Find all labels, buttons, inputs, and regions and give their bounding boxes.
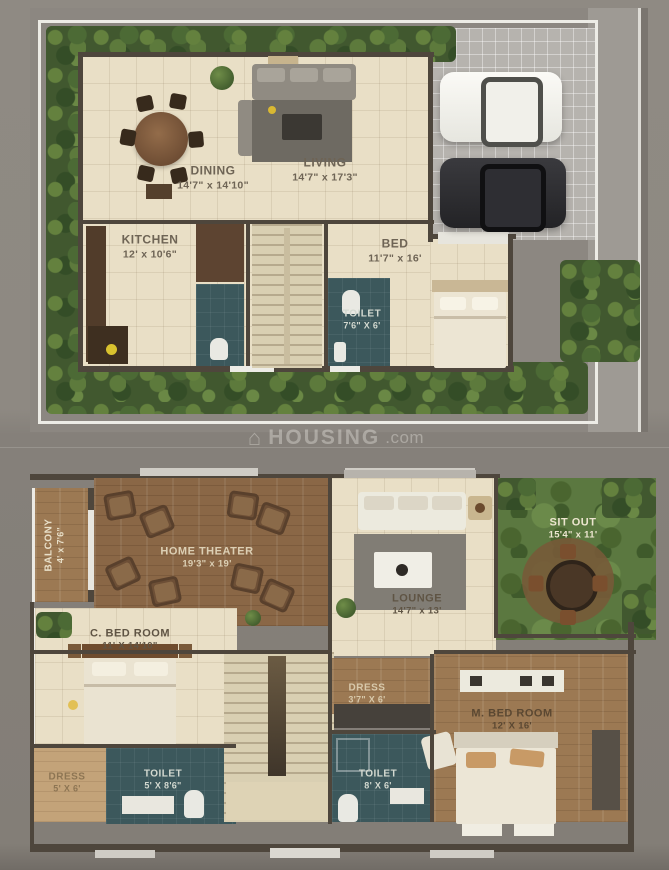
room-dims: 5' X 6' xyxy=(49,784,86,796)
ledge xyxy=(344,470,476,478)
room-dims: 15'4" x 11' xyxy=(549,530,598,542)
decor-dot xyxy=(268,106,276,114)
room-label-lounge: LOUNGE 14'7" x 13' xyxy=(392,592,442,619)
sofa-cushion xyxy=(432,496,462,510)
wall xyxy=(434,650,636,654)
wall xyxy=(508,234,513,372)
watermark-tld: .com xyxy=(385,428,424,448)
dining-chair xyxy=(119,128,137,146)
wc-fixture xyxy=(210,338,228,360)
room-name: HOME THEATER xyxy=(160,545,253,559)
staircase-landing xyxy=(226,782,332,820)
room-dims: 7'6" X 6' xyxy=(343,321,381,333)
sofa-cushion xyxy=(257,68,285,82)
room-label-toilet-ground: TOILET 7'6" X 6' xyxy=(343,308,381,333)
pillow xyxy=(509,748,544,767)
wall xyxy=(628,622,634,852)
counter-item xyxy=(470,676,482,686)
recliner xyxy=(226,490,259,521)
plant xyxy=(210,66,234,90)
room-label-dress-2: DRESS 3'7" X 6' xyxy=(348,682,385,707)
duvet-fold xyxy=(84,684,176,687)
pillow xyxy=(134,662,168,676)
room-label-c-bed-room: C. BED ROOM 11' X 14'10" xyxy=(90,627,170,654)
ledge xyxy=(430,850,494,858)
garden-chair xyxy=(560,544,576,559)
wall xyxy=(30,650,330,654)
sofa-cushion xyxy=(364,496,394,510)
sink-fixture xyxy=(334,342,346,362)
pillow xyxy=(440,297,466,310)
room-dims: 12' x 10'6" xyxy=(122,248,179,262)
sofa-cushion xyxy=(323,68,351,82)
door-opening xyxy=(330,366,360,372)
garden-chair xyxy=(593,576,608,592)
garden-chair xyxy=(529,576,544,592)
room-label-m-bed-room: M. BED ROOM 12' X 16' xyxy=(471,707,552,734)
plant xyxy=(245,610,261,626)
wall xyxy=(430,654,434,822)
duvet-fold xyxy=(434,316,506,319)
car-roof xyxy=(481,77,542,147)
room-name: M. BED ROOM xyxy=(471,707,552,721)
plant xyxy=(336,598,356,618)
room-name: LOUNGE xyxy=(392,592,442,606)
counter-item xyxy=(542,676,554,686)
wall xyxy=(78,52,83,372)
room-dims: 11'7" x 16' xyxy=(368,252,422,266)
room-dims: 11' X 14'10" xyxy=(90,641,170,653)
bench xyxy=(514,824,554,836)
ledge xyxy=(140,468,258,476)
sofa-cushion xyxy=(398,496,428,510)
room-dims: 5' X 8'6" xyxy=(144,781,182,793)
ledge xyxy=(95,850,155,858)
wardrobe xyxy=(334,704,432,728)
garden-table xyxy=(546,560,598,612)
room-name: SIT OUT xyxy=(549,516,598,530)
room-dims: 8' X 6' xyxy=(359,781,397,793)
ledge xyxy=(270,848,340,858)
wall xyxy=(428,52,433,242)
room-dims: 12' X 16' xyxy=(471,721,552,733)
lamp xyxy=(475,503,485,513)
bed xyxy=(84,658,176,752)
car-roof xyxy=(480,164,545,233)
room-label-dining: DINING 14'7" x 14'10" xyxy=(177,163,249,192)
coffee-table xyxy=(282,114,322,140)
room-dims: 14'7" x 17'3" xyxy=(292,171,358,185)
wall xyxy=(494,478,498,638)
counter-item xyxy=(520,676,532,686)
room-label-toilet-2: TOILET 8' X 6' xyxy=(359,768,397,793)
staircase-wall xyxy=(268,656,286,776)
wardrobe xyxy=(592,730,620,810)
vanity-counter xyxy=(122,796,174,814)
staircase-gap xyxy=(284,228,290,364)
room-name: LIVING xyxy=(292,155,358,171)
room-name: BALCONY xyxy=(43,519,56,572)
photo-seam xyxy=(0,447,669,448)
room-label-living: LIVING 14'7" x 17'3" xyxy=(292,155,358,184)
car-white xyxy=(440,72,562,142)
bed xyxy=(434,292,506,368)
dresser-counter xyxy=(460,670,564,692)
room-dims: 19'3" x 19' xyxy=(160,559,253,571)
recliner xyxy=(103,490,137,522)
sofa-cushion xyxy=(290,68,318,82)
wall xyxy=(30,602,34,852)
lamp xyxy=(68,700,78,710)
bed xyxy=(456,748,556,824)
room-label-balcony: BALCONY 4' x 7'6" xyxy=(43,519,68,572)
dining-chair xyxy=(188,131,204,148)
room-name: TOILET xyxy=(343,308,381,321)
room-label-bed: BED 11'7" x 16' xyxy=(368,236,422,265)
dining-chair xyxy=(137,165,156,183)
room-label-kitchen: KITCHEN 12' x 10'6" xyxy=(122,232,179,261)
kitchen-stool xyxy=(106,344,117,355)
wall xyxy=(32,744,236,748)
hedge-sitout xyxy=(602,478,656,518)
decor-bowl xyxy=(396,564,408,576)
room-dims: 14'7" x 14'10" xyxy=(177,179,249,193)
garden-chair xyxy=(560,610,576,625)
sofa xyxy=(252,64,356,100)
car-black xyxy=(440,158,566,228)
room-label-dress-1: DRESS 5' X 6' xyxy=(49,771,86,796)
wall xyxy=(494,634,636,638)
wc-fixture xyxy=(184,790,204,818)
dining-chair xyxy=(169,93,187,111)
ground-floor-plan xyxy=(30,8,648,432)
bed-headboard xyxy=(432,280,508,292)
floor-plan-image: DINING 14'7" x 14'10" LIVING 14'7" x 17'… xyxy=(0,0,669,870)
dining-table xyxy=(134,112,188,166)
closet xyxy=(196,224,244,282)
room-name: BED xyxy=(368,236,422,252)
window-plant xyxy=(36,612,72,638)
room-label-toilet-1: TOILET 5' X 8'6" xyxy=(144,768,182,793)
room-dims: 3'7" X 6' xyxy=(348,695,385,707)
hedge-right xyxy=(560,260,640,362)
room-name: C. BED ROOM xyxy=(90,627,170,641)
wall xyxy=(330,730,436,734)
room-name: DRESS xyxy=(49,771,86,784)
hedge-sitout xyxy=(496,478,536,510)
room-name: KITCHEN xyxy=(122,232,179,248)
room-dims: 4' x 7'6" xyxy=(56,519,68,572)
bench xyxy=(462,824,502,836)
wall xyxy=(78,52,434,57)
wall xyxy=(246,220,250,370)
window-ledge xyxy=(438,232,508,244)
room-name: TOILET xyxy=(359,768,397,781)
room-label-sit-out: SIT OUT 15'4" x 11' xyxy=(549,516,598,543)
room-name: TOILET xyxy=(144,768,182,781)
pillow xyxy=(466,752,496,768)
pillow xyxy=(472,297,498,310)
room-dims: 14'7" x 13' xyxy=(392,606,442,618)
room-name: DRESS xyxy=(348,682,385,695)
living-rug xyxy=(252,100,352,162)
pillow xyxy=(92,662,126,676)
sideboard xyxy=(146,184,172,199)
bed-headboard xyxy=(454,732,558,748)
road-edge xyxy=(641,8,648,432)
room-name: DINING xyxy=(177,163,249,179)
sofa xyxy=(358,492,466,530)
wc-fixture xyxy=(338,794,358,822)
side-table xyxy=(468,496,492,520)
room-label-home-theater: HOME THEATER 19'3" x 19' xyxy=(160,545,253,572)
